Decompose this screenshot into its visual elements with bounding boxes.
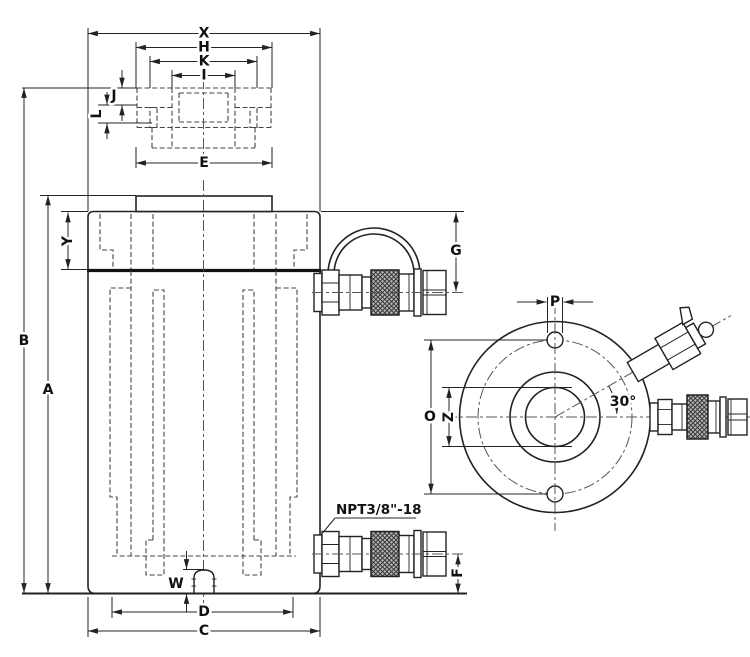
dim-label-b: B xyxy=(19,333,30,349)
technical-drawing: X H K I E J L B A Y W D C xyxy=(0,0,750,657)
hose-loop-inner xyxy=(334,234,414,274)
bottom-stud xyxy=(192,570,217,594)
thread-section-right xyxy=(250,108,257,128)
dim-label-f: F xyxy=(450,568,466,578)
dim-label-j: J xyxy=(110,88,116,104)
top-dimensions: X H K I E J L xyxy=(22,26,320,212)
dim-label-i: I xyxy=(201,68,206,84)
upper-coupler: G xyxy=(312,212,466,317)
dim-label-g: G xyxy=(450,243,462,259)
dim-label-p: P xyxy=(550,294,560,310)
dust-cap-lever xyxy=(675,304,695,325)
side-view: P O Z 30° xyxy=(424,294,750,531)
dim-label-d: D xyxy=(198,604,210,620)
dim-label-a: A xyxy=(43,382,54,398)
dim-label-e: E xyxy=(199,155,209,171)
cylinder-dimension-drawing: X H K I E J L B A Y W D C xyxy=(0,0,750,657)
dim-label-o: O xyxy=(424,409,436,425)
dim-label-l: L xyxy=(89,109,105,118)
port-thread-label: NPT3/8"-18 xyxy=(336,502,422,518)
side-coupler xyxy=(650,395,747,439)
dim-label-z: Z xyxy=(441,412,457,422)
dim-label-y: Y xyxy=(60,235,76,247)
dim-label-w: W xyxy=(168,576,183,592)
angle-label: 30° xyxy=(610,394,636,410)
thread-section-left xyxy=(150,108,157,128)
lower-coupler: F NPT3/8"-18 xyxy=(312,502,466,594)
dim-label-c: C xyxy=(199,623,209,639)
